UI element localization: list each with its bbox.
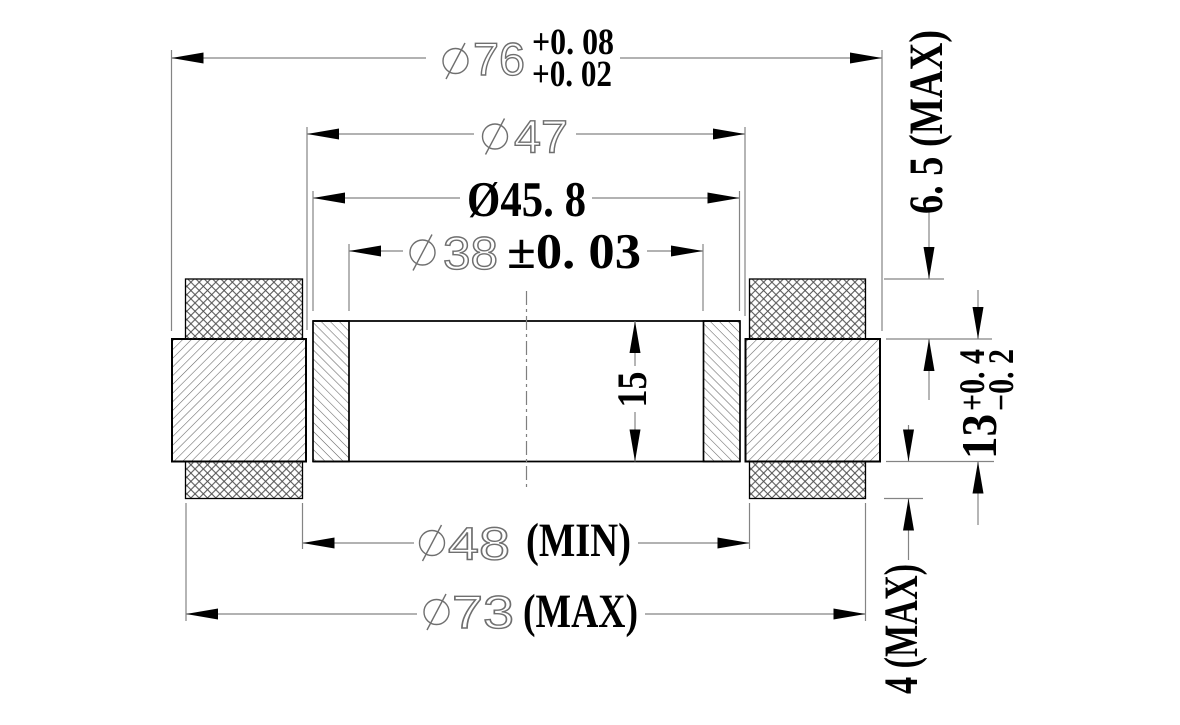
svg-text:15: 15 (610, 372, 656, 408)
svg-text:47: 47 (514, 111, 568, 163)
svg-text:76: 76 (473, 33, 525, 85)
svg-text:Ø45. 8: Ø45. 8 (467, 171, 586, 227)
svg-text:6. 5 (MAX): 6. 5 (MAX) (900, 30, 953, 214)
svg-text:4 (MAX): 4 (MAX) (875, 564, 928, 694)
svg-text:+0. 02: +0. 02 (532, 54, 612, 95)
svg-text:73: 73 (452, 586, 514, 638)
svg-text:±0. 03: ±0. 03 (507, 223, 641, 279)
svg-text:(MIN): (MIN) (526, 514, 631, 567)
svg-text:38: 38 (443, 227, 498, 279)
svg-text:13: 13 (951, 414, 1007, 459)
svg-text:(MAX): (MAX) (523, 585, 638, 638)
svg-text:48: 48 (448, 518, 510, 570)
svg-text:−0. 2: −0. 2 (981, 349, 1021, 411)
